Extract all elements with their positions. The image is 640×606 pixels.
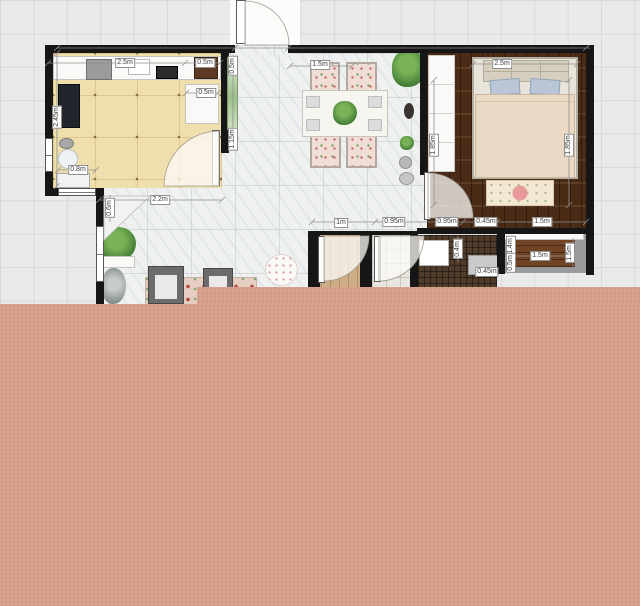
dim-label: 1.5m: [532, 217, 552, 227]
dim-label: 0.5m: [506, 253, 516, 273]
dim-label: 0.95m: [382, 217, 405, 227]
dim-label: 0.8m: [68, 165, 88, 175]
dim-label: 0.95m: [435, 217, 458, 227]
dim-label: 2.2m: [150, 195, 170, 205]
dim-label: 1.85m: [429, 133, 439, 156]
dim-label: 0.4m: [453, 239, 463, 259]
dim-label: 0.6m: [105, 198, 115, 218]
dim-label: 1.5m: [565, 243, 575, 263]
dim-label: 0.5m: [196, 88, 216, 98]
dim-label: 2.45m: [52, 105, 62, 128]
dim-label: 2.5m: [492, 59, 512, 69]
dim-label: 1.5m: [310, 60, 330, 70]
floorplan-canvas: 2.5m 0.5m 0.5m 2.45m 0.8m 0.5m 1.15m 2.2…: [0, 0, 640, 606]
dim-label: 0.45m: [475, 267, 498, 277]
dim-label: 1.85m: [564, 133, 574, 156]
dim-label: 1.15m: [228, 127, 238, 150]
dim-label: 0.5m: [228, 56, 238, 76]
dim-label: 1m: [334, 218, 348, 228]
dim-label: 0.45m: [474, 217, 497, 227]
pink-overlay-lower: [0, 304, 640, 606]
dim-label: 1.5m: [530, 251, 550, 261]
pink-overlay-upper: [197, 287, 640, 305]
dim-label: 2.5m: [115, 58, 135, 68]
dim-label: 0.5m: [195, 58, 215, 68]
